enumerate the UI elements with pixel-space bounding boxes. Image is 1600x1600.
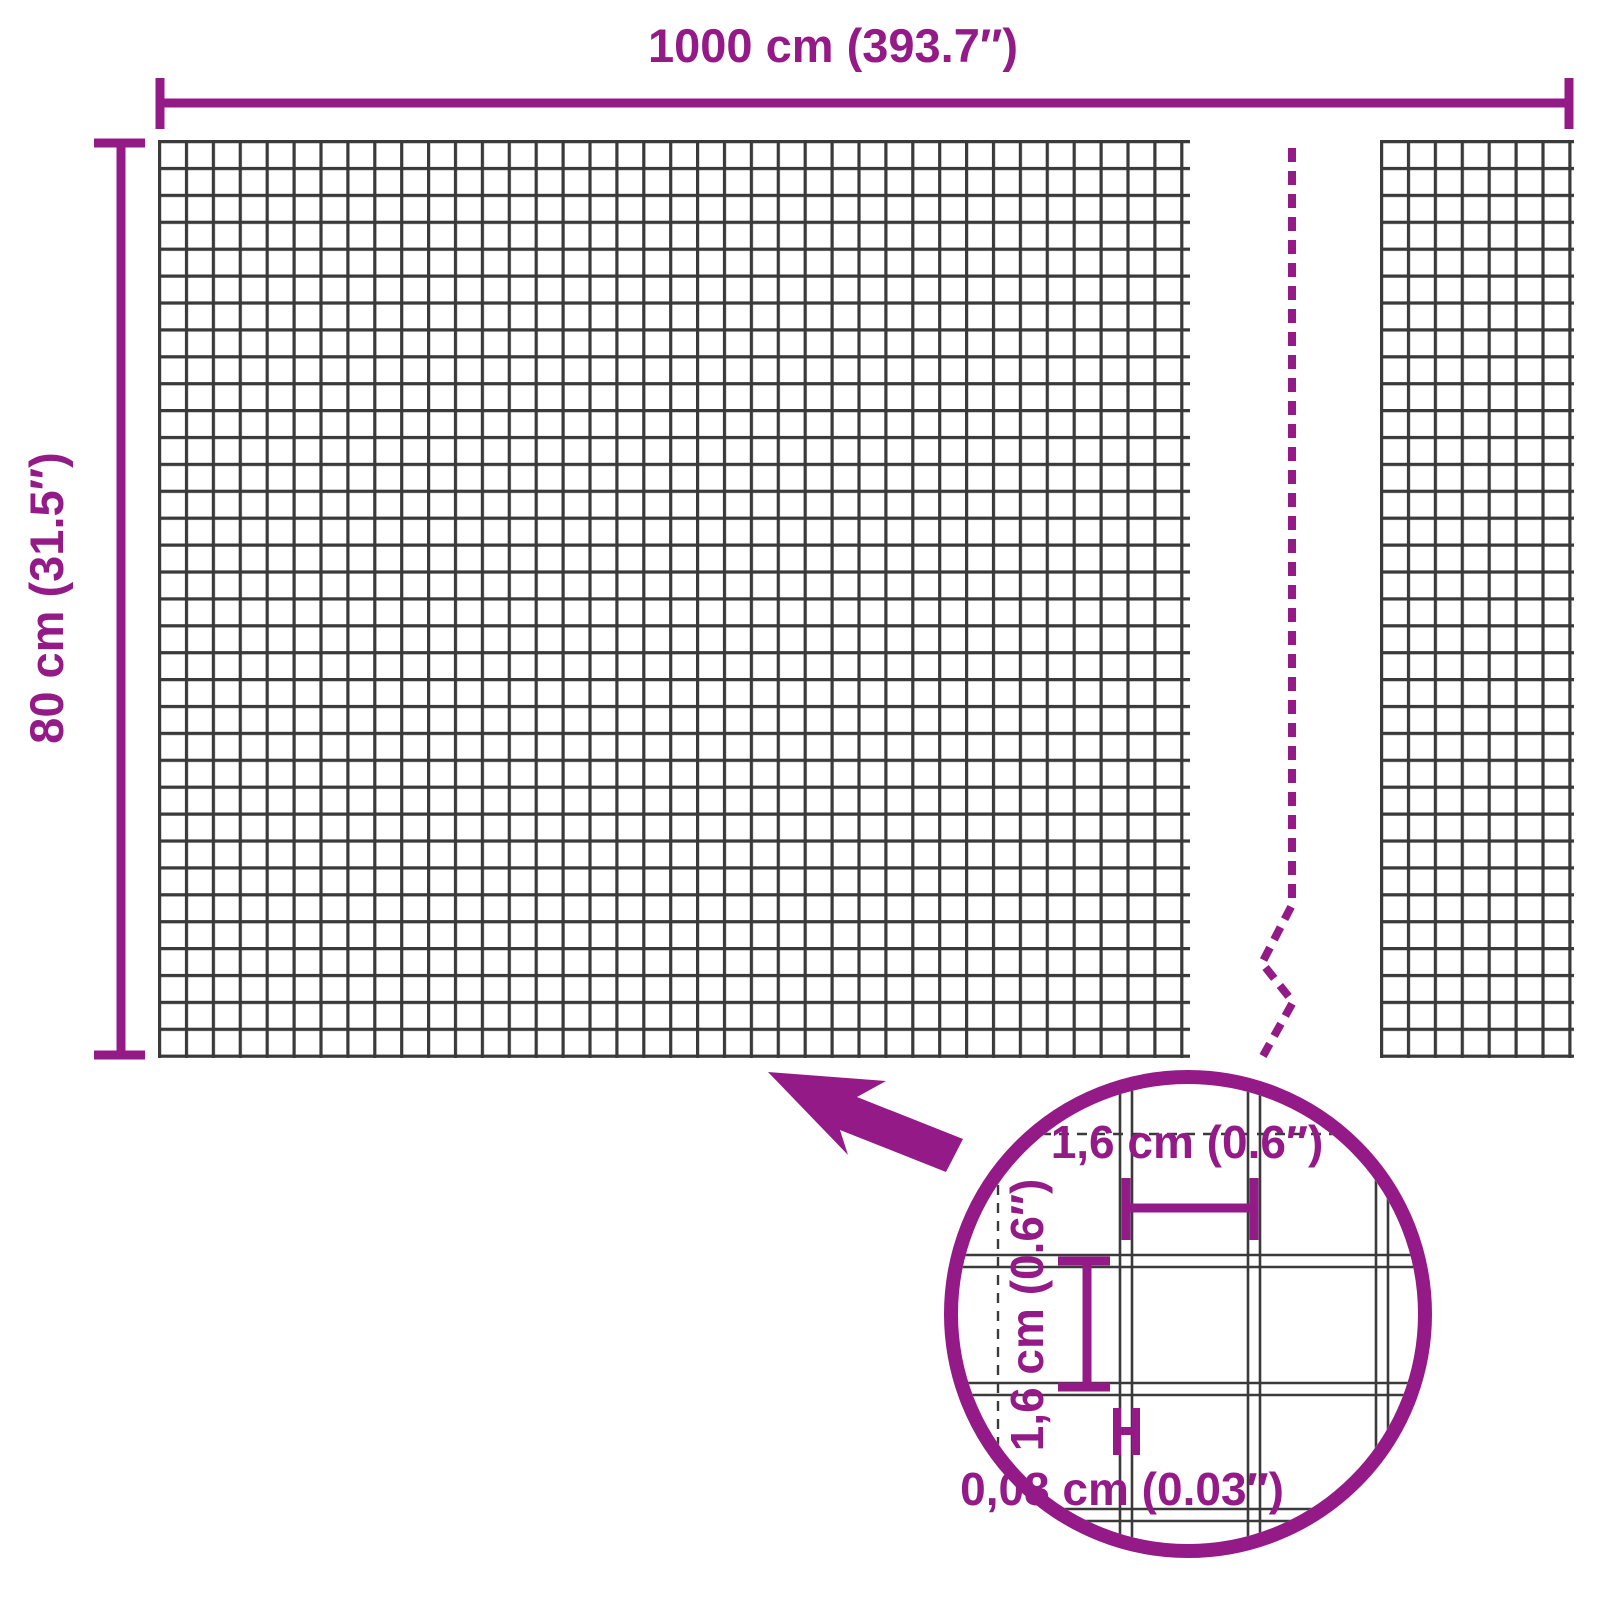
wire-thickness-label: 0,08 cm (0.03″) [960,1463,1284,1515]
mesh-panel-right [1380,140,1574,1058]
mesh-dimensions-diagram: 1000 cm (393.7″) 80 cm (31.5″) [0,0,1600,1600]
width-dimension [160,78,1569,129]
height-dimension [94,143,145,1055]
mesh-panel-right-grid [1380,140,1574,1058]
diagram-svg: 1000 cm (393.7″) 80 cm (31.5″) [0,0,1600,1600]
panel-break-line [1262,148,1293,1056]
height-dimension-label: 80 cm (31.5″) [20,452,73,744]
width-dimension-label: 1000 cm (393.7″) [648,19,1018,72]
opening-width-label: 1,6 cm (0.6″) [1051,1116,1324,1168]
zoom-arrow-shape [768,1072,963,1172]
mesh-panel-main-grid [158,140,1190,1058]
mesh-panel-main [158,140,1190,1058]
opening-height-label: 1,6 cm (0.6″) [1001,1179,1053,1452]
detail-circle-group: 1,6 cm (0.6″) 1,6 cm (0.6″) 0,08 cm (0.0… [951,1077,1425,1551]
